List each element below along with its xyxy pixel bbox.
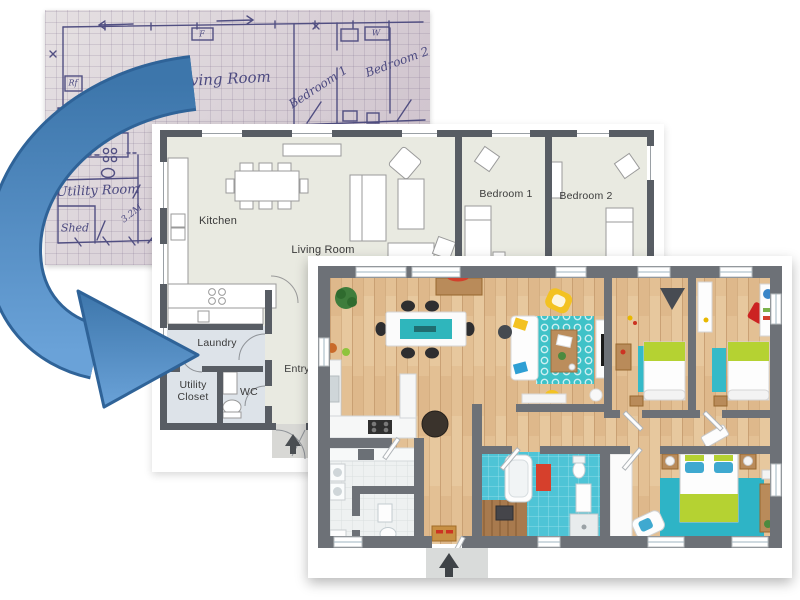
stove-burner-2d bbox=[219, 289, 226, 296]
plan2d-label-wc: WC bbox=[240, 386, 258, 398]
bed2-headboard bbox=[728, 390, 769, 400]
plan2d-label-bedroom-2: Bedroom 2 bbox=[559, 190, 612, 202]
dining-chair-3d bbox=[425, 348, 439, 359]
wall-2d-entry-left bbox=[265, 290, 272, 334]
wc-sink-3d bbox=[378, 504, 392, 522]
console-3d bbox=[522, 394, 566, 403]
side-table-3d bbox=[498, 325, 512, 339]
sketch-door-swings bbox=[307, 100, 411, 123]
dining-chair-2d bbox=[300, 179, 308, 193]
dining-chair-2d bbox=[259, 201, 272, 209]
green-item-3d bbox=[342, 348, 350, 356]
nightstand1-3d bbox=[630, 396, 643, 406]
round-table-3d bbox=[422, 411, 448, 437]
wall-2d-utility-top bbox=[202, 366, 263, 372]
sketch-small-box bbox=[343, 111, 357, 121]
bathroom-sink-3d bbox=[576, 484, 591, 512]
wall-living-bed1 bbox=[604, 278, 612, 414]
dining-chair-2d bbox=[259, 163, 272, 171]
sketch-to-floorplan-illustration: Living Room Bedroom 1 Bedroom 2 Utility … bbox=[0, 0, 800, 600]
green-pillow bbox=[685, 455, 704, 461]
dining-chair-2d bbox=[226, 179, 234, 193]
bedroom2-rug-3d bbox=[712, 348, 726, 392]
sketch-arrow-right bbox=[217, 16, 253, 24]
entry-pad-3d bbox=[426, 548, 488, 578]
kitchen-counter-right-3d bbox=[400, 374, 416, 418]
sketch-arrow-left bbox=[99, 21, 133, 29]
master-blanket-3d bbox=[680, 494, 738, 522]
laundry-appliance-3d bbox=[358, 449, 374, 460]
dining-table-2d bbox=[235, 171, 299, 201]
cooktop-3d bbox=[368, 420, 392, 434]
tv-3d bbox=[601, 334, 605, 366]
shoe-red bbox=[436, 530, 443, 534]
floor-plan-3d-drawing bbox=[308, 256, 792, 578]
sketch-label-fixture: F bbox=[199, 30, 205, 39]
green-pillow bbox=[714, 455, 733, 461]
plan2d-label-entry: Entry bbox=[284, 363, 310, 375]
shower-drain bbox=[582, 525, 587, 530]
bed2-blanket-3d bbox=[728, 342, 769, 361]
nightstand2-3d bbox=[714, 396, 727, 406]
dining-chair-2d bbox=[278, 201, 291, 209]
wall-hall-left bbox=[472, 404, 482, 548]
white-pouf-3d bbox=[590, 389, 602, 401]
wc-sink-2d bbox=[223, 372, 237, 394]
wall-living-bottom bbox=[516, 404, 604, 412]
lamp-3d bbox=[744, 457, 753, 466]
sketch-closet-box bbox=[341, 29, 358, 41]
bed1-blanket-3d bbox=[644, 342, 685, 361]
wall-2d-entry-left bbox=[265, 360, 272, 386]
conversion-arrow bbox=[0, 55, 210, 415]
desk1-3d bbox=[616, 344, 631, 370]
dining-chair-2d bbox=[278, 163, 291, 171]
toy-yellow bbox=[628, 316, 633, 321]
toilet-tank-2d bbox=[223, 412, 241, 418]
coffee-table-2d bbox=[398, 179, 424, 229]
table-plant-3d bbox=[558, 352, 566, 360]
wall-bath-right bbox=[600, 454, 610, 548]
plan2d-label-bedroom-1: Bedroom 1 bbox=[479, 188, 532, 200]
wall-2d-entry-left bbox=[265, 406, 272, 430]
toilet-tank-3d bbox=[573, 456, 585, 463]
arrow-head bbox=[78, 291, 198, 407]
dining-chair-2d bbox=[240, 163, 253, 171]
dining-chair-3d bbox=[425, 301, 439, 312]
wall-bed1-bed2 bbox=[688, 278, 696, 414]
cup-3d bbox=[569, 364, 575, 370]
tray-3d bbox=[556, 335, 572, 348]
blue-pillow bbox=[685, 462, 704, 473]
wall-2d-bed2 bbox=[545, 137, 552, 272]
dining-chair-2d bbox=[240, 201, 253, 209]
dryer-door bbox=[333, 487, 342, 496]
red-bath-mat-3d bbox=[536, 464, 551, 491]
washer-door bbox=[333, 468, 342, 477]
lamp-3d bbox=[666, 457, 675, 466]
wall-2d-wc-divider bbox=[217, 372, 223, 429]
bed1-headboard bbox=[644, 390, 685, 400]
table-tray-3d bbox=[414, 326, 436, 332]
bathtub-inner-3d bbox=[509, 460, 528, 497]
master-closet-3d bbox=[610, 454, 632, 544]
floor-plan-3d bbox=[308, 256, 792, 578]
sofa-2d bbox=[350, 175, 386, 241]
plan2d-label-living-room: Living Room bbox=[291, 244, 354, 256]
toy-red bbox=[633, 321, 637, 325]
wardrobe2-3d bbox=[698, 282, 712, 332]
toy-yellow bbox=[704, 318, 709, 323]
sketch-label-wardrobe: W bbox=[372, 29, 380, 38]
dining-chair-3d bbox=[401, 301, 415, 312]
toy-red bbox=[621, 350, 626, 355]
tv-bench-2d bbox=[283, 144, 341, 156]
dining-chair-3d bbox=[376, 322, 387, 336]
shoe-red bbox=[446, 530, 453, 534]
blue-pillow bbox=[714, 462, 733, 473]
toilet-3d bbox=[573, 462, 585, 478]
wall-2d-bed1 bbox=[455, 137, 462, 272]
stove-burner-2d bbox=[219, 298, 226, 305]
sauna-heater-3d bbox=[496, 506, 513, 520]
dining-chair-3d bbox=[401, 348, 415, 359]
